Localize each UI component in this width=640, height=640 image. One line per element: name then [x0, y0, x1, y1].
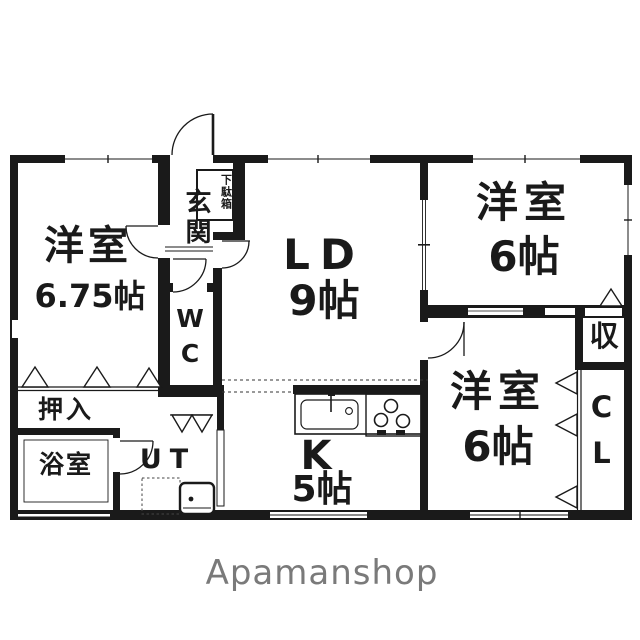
- storage-opening: [585, 308, 622, 316]
- washing-machine-space: [142, 478, 180, 514]
- utility-folding-door: [172, 415, 192, 432]
- label-kitchen-size: 5帖: [291, 472, 352, 508]
- wall-segment: [217, 397, 224, 430]
- label-wc: WC: [178, 304, 203, 374]
- label-living-dining-size: 9帖: [288, 280, 359, 322]
- label-utility: UT: [140, 446, 196, 473]
- label-living-dining: LD: [283, 234, 365, 276]
- wall-segment: [233, 155, 245, 240]
- utility-folding-door: [192, 415, 212, 432]
- label-shoe-cabinet: 下駄箱: [221, 174, 232, 210]
- oshiire-folding-door: [22, 367, 48, 387]
- oshiire-folding-door: [84, 367, 110, 387]
- wall-segment: [575, 362, 632, 370]
- storage-folding-door: [600, 289, 622, 306]
- sink-drain: [189, 497, 194, 502]
- bathroom-door-opening: [113, 438, 120, 472]
- label-west-room-3-size: 6帖: [462, 426, 533, 468]
- wall-segment: [213, 232, 245, 240]
- label-bathroom: 浴室: [39, 452, 93, 477]
- floorplan-page: 洋室 6.75帖 LD 9帖 洋室 6帖 洋室 6帖 K 5帖 玄関 下駄箱 W…: [0, 0, 640, 640]
- label-storage: 収: [589, 322, 618, 351]
- front-door-opening: [170, 154, 213, 164]
- label-entrance: 玄関: [183, 188, 209, 248]
- wall-segment: [575, 318, 583, 362]
- label-west-room-3: 洋室: [450, 371, 546, 413]
- apamanshop-logo: Apamanshop: [206, 553, 439, 593]
- label-west-room-1-size: 6.75帖: [35, 280, 146, 312]
- wall-segment: [158, 385, 224, 397]
- label-west-room-2-size: 6帖: [488, 236, 559, 278]
- closet-folding-door: [556, 414, 577, 436]
- closet-folding-door: [556, 372, 577, 394]
- label-west-room-2: 洋室: [476, 182, 572, 224]
- utility-kitchen-door: [217, 430, 224, 506]
- west-room-3-door-arc: [428, 322, 464, 358]
- transom-opening: [468, 308, 523, 315]
- label-oshiire: 押入: [38, 397, 94, 422]
- ld-door-arc: [222, 241, 249, 268]
- stove-knob: [396, 430, 405, 435]
- wall-segment: [158, 163, 170, 225]
- west-room-3-door-opening: [421, 322, 428, 360]
- faucet-icon: [328, 392, 335, 396]
- closet-folding-door: [556, 486, 577, 508]
- window: [12, 320, 18, 338]
- kitchen-counter: [293, 385, 423, 436]
- oshiire-folding-door: [137, 368, 161, 387]
- wall-inner-line: [18, 514, 110, 517]
- sliding-door-ld-bedroom: [418, 200, 430, 290]
- laundry-sink: [180, 483, 214, 514]
- label-closet: CL: [587, 390, 616, 482]
- transom-opening: [545, 308, 575, 315]
- stove-knob: [377, 430, 386, 435]
- wall-segment: [420, 163, 428, 200]
- wall-segment: [15, 428, 120, 435]
- label-west-room-1: 洋室: [44, 226, 132, 266]
- front-door-arc: [172, 114, 213, 155]
- wall-segment: [158, 258, 170, 397]
